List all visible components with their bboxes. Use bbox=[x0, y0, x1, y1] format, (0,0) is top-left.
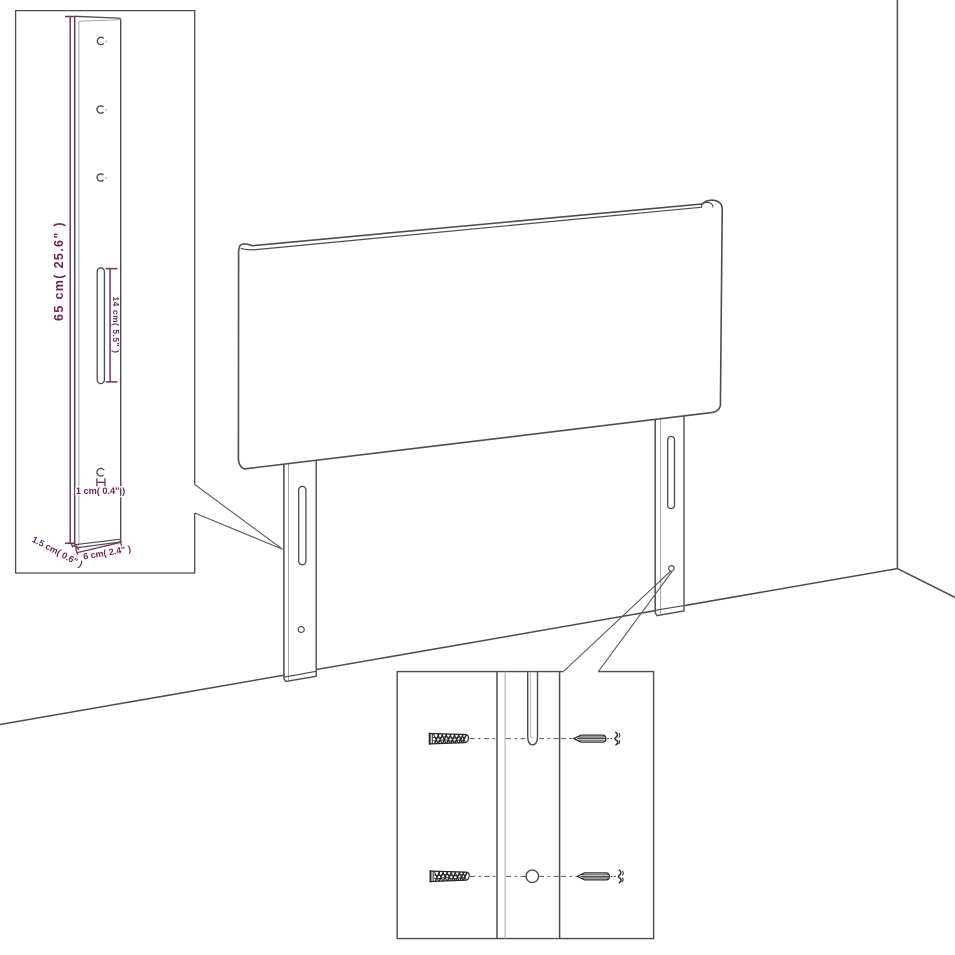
svg-text:1 cm( 0.4" ): 1 cm( 0.4" ) bbox=[76, 486, 125, 496]
svg-text:65 cm( 25.6" ): 65 cm( 25.6" ) bbox=[52, 221, 66, 321]
svg-text:14 cm( 5.5" ): 14 cm( 5.5" ) bbox=[111, 297, 121, 354]
